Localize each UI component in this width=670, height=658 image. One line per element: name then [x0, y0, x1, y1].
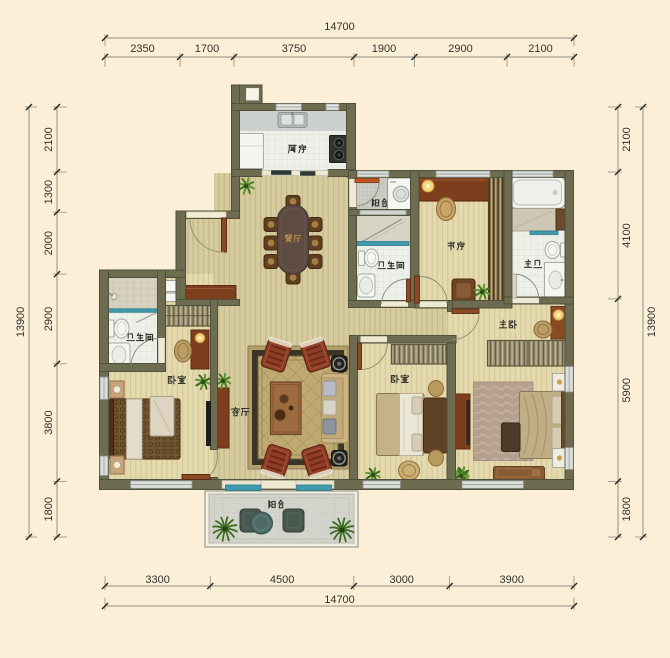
svg-text:3000: 3000 [389, 574, 413, 586]
svg-text:1700: 1700 [195, 43, 219, 55]
svg-text:13900: 13900 [646, 307, 658, 338]
svg-text:4100: 4100 [621, 223, 633, 247]
svg-text:3900: 3900 [500, 574, 524, 586]
svg-text:1800: 1800 [621, 497, 633, 521]
svg-text:4500: 4500 [270, 574, 294, 586]
svg-text:5900: 5900 [621, 378, 633, 402]
svg-text:3300: 3300 [145, 574, 169, 586]
svg-text:14700: 14700 [324, 594, 355, 606]
svg-text:2900: 2900 [448, 43, 472, 55]
svg-text:14700: 14700 [324, 21, 355, 33]
svg-text:1300: 1300 [43, 180, 55, 204]
svg-text:2100: 2100 [621, 127, 633, 151]
svg-text:3800: 3800 [43, 410, 55, 434]
svg-text:2100: 2100 [528, 43, 552, 55]
svg-text:2100: 2100 [43, 127, 55, 151]
svg-text:2000: 2000 [43, 231, 55, 255]
svg-text:2900: 2900 [43, 307, 55, 331]
svg-text:3750: 3750 [282, 43, 306, 55]
svg-text:1900: 1900 [372, 43, 396, 55]
svg-text:2350: 2350 [130, 43, 154, 55]
svg-text:13900: 13900 [15, 307, 27, 338]
svg-text:1800: 1800 [43, 497, 55, 521]
